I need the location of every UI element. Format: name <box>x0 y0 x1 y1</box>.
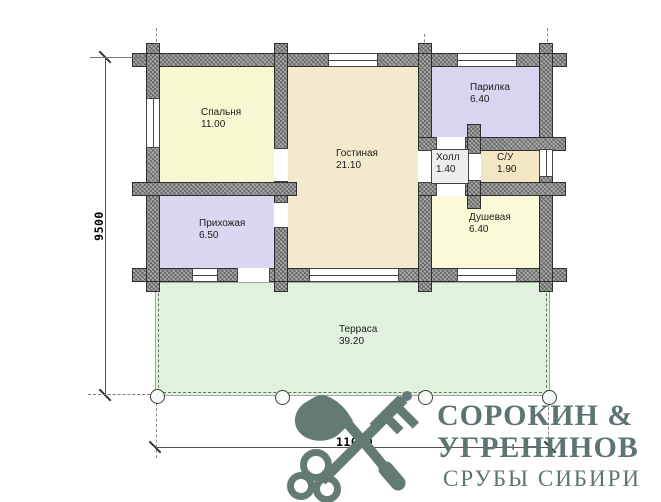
room-area: 6.40 <box>469 224 511 236</box>
room-label-wc: С/У 1.90 <box>497 152 516 176</box>
wall-stub-top-3 <box>418 43 432 54</box>
window-wc <box>539 149 553 177</box>
centerline-mark <box>424 34 425 53</box>
room-name: Парилка <box>470 82 510 94</box>
door-living-hall <box>418 150 432 183</box>
wall-stub-steam <box>467 124 481 138</box>
door-hall-shower <box>436 182 466 196</box>
door-bedroom-living <box>274 148 288 182</box>
wall-stub-bottom-3 <box>418 281 432 292</box>
logo-text-line1: СОРОКИН & <box>437 399 633 433</box>
wall-stub-bottom-4 <box>539 281 553 292</box>
room-area: 6.40 <box>470 94 510 106</box>
room-area: 11.00 <box>201 119 241 131</box>
room-name: Спальня <box>201 107 241 119</box>
room-area: 6.50 <box>199 230 245 242</box>
room-area: 1.90 <box>497 164 516 176</box>
room-label-living: Гостиная 21.10 <box>336 148 378 172</box>
room-name: Душевая <box>469 212 511 224</box>
dim-extension-terrace-left <box>156 398 157 458</box>
room-name: Гостиная <box>336 148 378 160</box>
room-area: 21.10 <box>336 160 378 172</box>
room-label-shower: Душевая 6.40 <box>469 212 511 236</box>
room-label-hall: Холл 1.40 <box>436 152 460 176</box>
window-bedroom <box>146 98 160 148</box>
room-name: Терраса <box>339 324 377 336</box>
dim-extension-bottom-left <box>88 394 155 395</box>
centerline-mark <box>156 28 157 53</box>
door-entry-terrace <box>237 268 270 282</box>
wall-stub-top-1 <box>146 43 160 54</box>
window-living-bottom <box>309 268 399 282</box>
wall-stub-left-2 <box>132 268 147 282</box>
centerline-mark <box>547 28 548 53</box>
room-area: 1.40 <box>436 164 460 176</box>
wall-stub-top-4 <box>539 43 553 54</box>
wall-stub-top-2 <box>274 43 288 54</box>
wall-stub-bottom-1 <box>146 281 160 292</box>
terrace-post-3 <box>418 390 433 405</box>
room-label-steam: Парилка 6.40 <box>470 82 510 106</box>
terrace-post-1 <box>150 389 165 404</box>
room-label-bedroom: Спальня 11.00 <box>201 107 241 131</box>
dim-extension-top-left <box>90 57 146 58</box>
floor-plan: Спальня 11.00 Гостиная 21.10 Парилка 6.4… <box>0 0 661 502</box>
room-label-entry: Прихожая 6.50 <box>199 218 245 242</box>
room-name: Прихожая <box>199 218 245 230</box>
room-area: 39.20 <box>339 336 377 348</box>
wall-exterior-left <box>146 53 160 282</box>
window-steam <box>457 53 517 67</box>
window-living-top <box>328 53 378 67</box>
window-shower <box>457 268 517 282</box>
room-label-terrace: Терраса 39.20 <box>339 324 377 348</box>
room-name: Холл <box>436 152 460 164</box>
door-hall-wc <box>467 153 481 181</box>
logo-text-line3: СРУБЫ СИБИРИ <box>443 466 641 492</box>
wall-stub-right-1 <box>552 53 567 67</box>
window-entry <box>192 268 218 282</box>
wall-stub-left-1 <box>132 53 147 67</box>
terrace-post-2 <box>275 390 290 405</box>
dim-label-height: 9500 <box>92 211 106 241</box>
room-name: С/У <box>497 152 516 164</box>
wall-stub-bottom-2 <box>274 281 288 292</box>
wall-interior-bedroom-entry <box>132 182 297 196</box>
wall-stub-right-2 <box>552 268 567 282</box>
logo-text-line2: УГРЕНИНОВ <box>437 431 639 465</box>
wall-stub-shower <box>467 195 481 209</box>
door-entry-living <box>274 202 288 228</box>
